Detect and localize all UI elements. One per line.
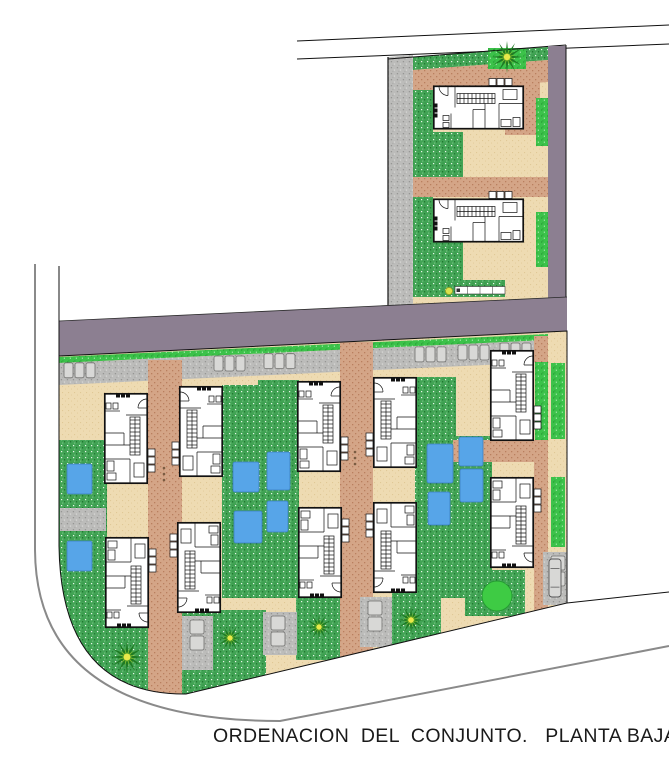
- porch-step: [505, 192, 512, 199]
- porch-step: [366, 530, 373, 537]
- porch-step: [172, 442, 179, 449]
- window-block: [197, 387, 201, 391]
- villa-floorplan: [299, 508, 349, 597]
- site-plan-drawing: [0, 0, 669, 761]
- window-block: [401, 378, 405, 382]
- parking-stall: [480, 345, 489, 360]
- window-block: [117, 624, 121, 628]
- palm-crown: [124, 654, 131, 661]
- porch-step: [149, 565, 156, 572]
- window-block: [502, 564, 506, 568]
- porch-step: [170, 534, 177, 541]
- porch-step: [172, 458, 179, 465]
- swimming-pool: [67, 464, 92, 494]
- porch-step: [366, 522, 373, 529]
- window-block: [391, 378, 395, 382]
- swimming-pool: [234, 511, 262, 543]
- garden-path: [148, 360, 182, 698]
- hedge: [551, 363, 565, 439]
- parking-stall: [86, 363, 95, 378]
- parking-stall: [271, 616, 285, 630]
- path-dot: [163, 467, 166, 470]
- garden-path: [534, 336, 548, 362]
- swimming-pool: [459, 437, 483, 466]
- window-block: [502, 351, 506, 355]
- road-vertical: [548, 46, 566, 308]
- villa-floorplan: [434, 79, 523, 129]
- porch-step: [505, 79, 512, 86]
- graphic-scale-bar: [455, 287, 505, 295]
- scale-mark: [457, 289, 461, 293]
- swimming-pool: [428, 492, 450, 525]
- window-block: [320, 594, 324, 598]
- driveway-paving: [388, 55, 413, 306]
- path-dot: [354, 463, 357, 466]
- path-dot: [163, 479, 166, 482]
- porch-step: [148, 449, 155, 456]
- shrub-dot: [446, 288, 453, 295]
- parking-stall: [64, 363, 73, 378]
- porch-step: [342, 519, 349, 526]
- window-block: [507, 564, 511, 568]
- window-block: [121, 394, 125, 398]
- palm-crown: [227, 635, 232, 640]
- parking-stall: [236, 356, 245, 371]
- swimming-pool: [233, 462, 259, 492]
- parking-stall: [437, 347, 446, 362]
- window-block: [127, 624, 131, 628]
- villa-floorplan: [105, 394, 155, 483]
- swimming-pool: [267, 452, 290, 490]
- porch-step: [534, 406, 541, 413]
- porch-step: [366, 433, 373, 440]
- parking-stall: [214, 356, 223, 371]
- porch-step: [148, 457, 155, 464]
- window-block: [512, 564, 516, 568]
- window-block: [434, 222, 438, 226]
- lower-villas-block: [59, 330, 567, 702]
- swimming-pool: [460, 469, 483, 502]
- porch-step: [366, 514, 373, 521]
- hedge: [536, 98, 548, 146]
- window-block: [396, 589, 400, 593]
- hedge: [551, 477, 565, 547]
- window-block: [309, 382, 313, 386]
- window-block: [200, 609, 204, 613]
- villa-floorplan: [106, 538, 156, 627]
- villa-floorplan: [172, 387, 222, 476]
- window-block: [116, 394, 120, 398]
- car-icon: [549, 559, 561, 597]
- window-block: [195, 609, 199, 613]
- porch-step: [497, 192, 504, 199]
- porch-step: [170, 542, 177, 549]
- window-block: [507, 351, 511, 355]
- window-block: [434, 227, 438, 231]
- porch-step: [342, 535, 349, 542]
- parking-stall: [190, 620, 204, 634]
- porch-step: [149, 557, 156, 564]
- window-block: [205, 609, 209, 613]
- bush: [482, 581, 512, 611]
- villa-floorplan: [366, 503, 416, 592]
- porch-step: [534, 497, 541, 504]
- parking-stall: [426, 347, 435, 362]
- parking-stall: [286, 354, 295, 369]
- lawn-patch: [258, 380, 299, 450]
- window-block: [122, 624, 126, 628]
- palm-crown: [408, 617, 414, 623]
- parking-stall: [458, 345, 467, 360]
- hedge: [536, 212, 548, 267]
- palm-crown: [504, 54, 510, 60]
- street-curb-line: [297, 25, 669, 41]
- swimming-pool: [67, 541, 92, 571]
- porch-step: [341, 453, 348, 460]
- window-block: [512, 351, 516, 355]
- parking-stall: [275, 354, 284, 369]
- window-block: [396, 378, 400, 382]
- plan-canvas: ORDENACION DEL CONJUNTO. PLANTA BAJA: [0, 0, 669, 761]
- villa-floorplan: [434, 192, 523, 242]
- porch-step: [341, 437, 348, 444]
- porch-step: [172, 450, 179, 457]
- villa-floorplan: [298, 382, 348, 471]
- parking-stall: [415, 347, 424, 362]
- window-block: [310, 594, 314, 598]
- window-block: [434, 114, 438, 118]
- window-block: [401, 589, 405, 593]
- porch-step: [366, 449, 373, 456]
- palm-crown: [316, 624, 321, 629]
- garden-path: [413, 177, 548, 197]
- porch-step: [341, 445, 348, 452]
- window-block: [434, 109, 438, 113]
- parking-stall: [75, 363, 84, 378]
- window-block: [315, 594, 319, 598]
- parking-stall: [469, 345, 478, 360]
- window-block: [126, 394, 130, 398]
- porch-step: [489, 79, 496, 86]
- swimming-pool: [427, 444, 453, 483]
- porch-step: [149, 549, 156, 556]
- window-block: [391, 589, 395, 593]
- parking-stall: [368, 601, 382, 615]
- street-curb-line: [567, 592, 669, 603]
- plan-caption: ORDENACION DEL CONJUNTO. PLANTA BAJA: [213, 725, 669, 748]
- swimming-pool: [267, 501, 288, 532]
- upper-villas-block: [388, 41, 566, 306]
- window-block: [207, 387, 211, 391]
- window-block: [314, 382, 318, 386]
- parking-stall: [264, 354, 273, 369]
- villa-floorplan: [366, 378, 416, 467]
- path-dot: [354, 457, 357, 460]
- path-dot: [354, 451, 357, 454]
- porch-step: [534, 422, 541, 429]
- driveway-paving: [60, 508, 106, 531]
- parking-stall: [271, 632, 285, 646]
- porch-step: [534, 489, 541, 496]
- window-block: [319, 382, 323, 386]
- porch-step: [534, 414, 541, 421]
- window-block: [202, 387, 206, 391]
- parking-stall: [225, 356, 234, 371]
- window-block: [434, 217, 438, 221]
- porch-step: [342, 527, 349, 534]
- porch-step: [489, 192, 496, 199]
- parking-stall: [190, 636, 204, 650]
- parking-stall: [368, 617, 382, 631]
- porch-step: [534, 505, 541, 512]
- window-block: [434, 104, 438, 108]
- porch-step: [497, 79, 504, 86]
- path-dot: [163, 473, 166, 476]
- villa-floorplan: [491, 351, 541, 440]
- lawn-patch: [413, 132, 463, 178]
- porch-step: [148, 465, 155, 472]
- porch-step: [170, 550, 177, 557]
- villa-floorplan: [170, 523, 220, 612]
- villa-floorplan: [491, 478, 541, 567]
- porch-step: [366, 441, 373, 448]
